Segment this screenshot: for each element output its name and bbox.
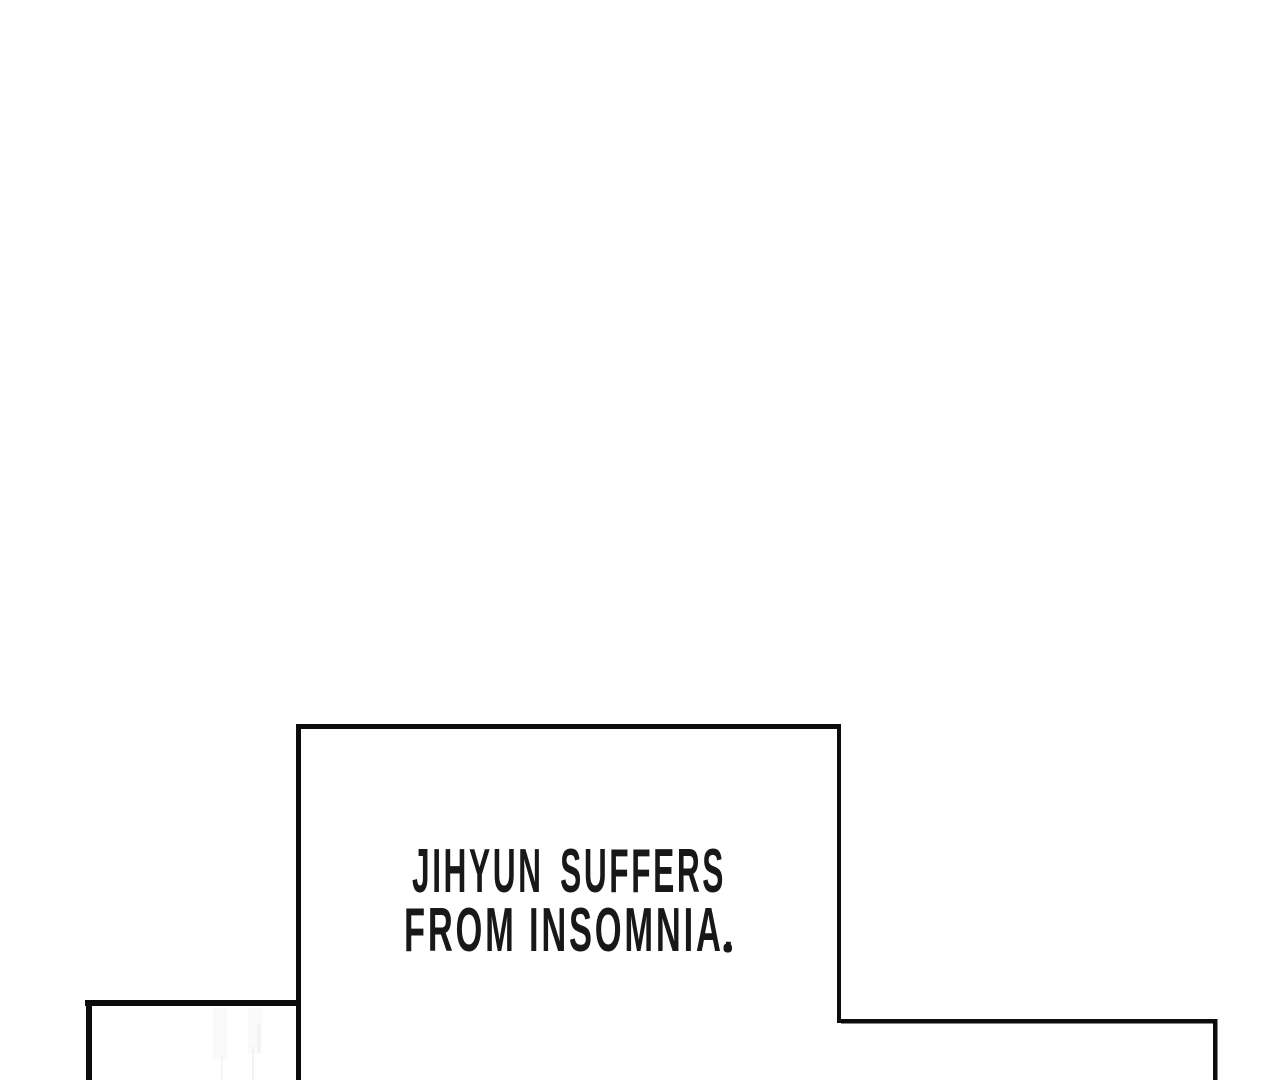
svg-text:FROM INSOMNIA.: FROM INSOMNIA. <box>404 896 736 965</box>
